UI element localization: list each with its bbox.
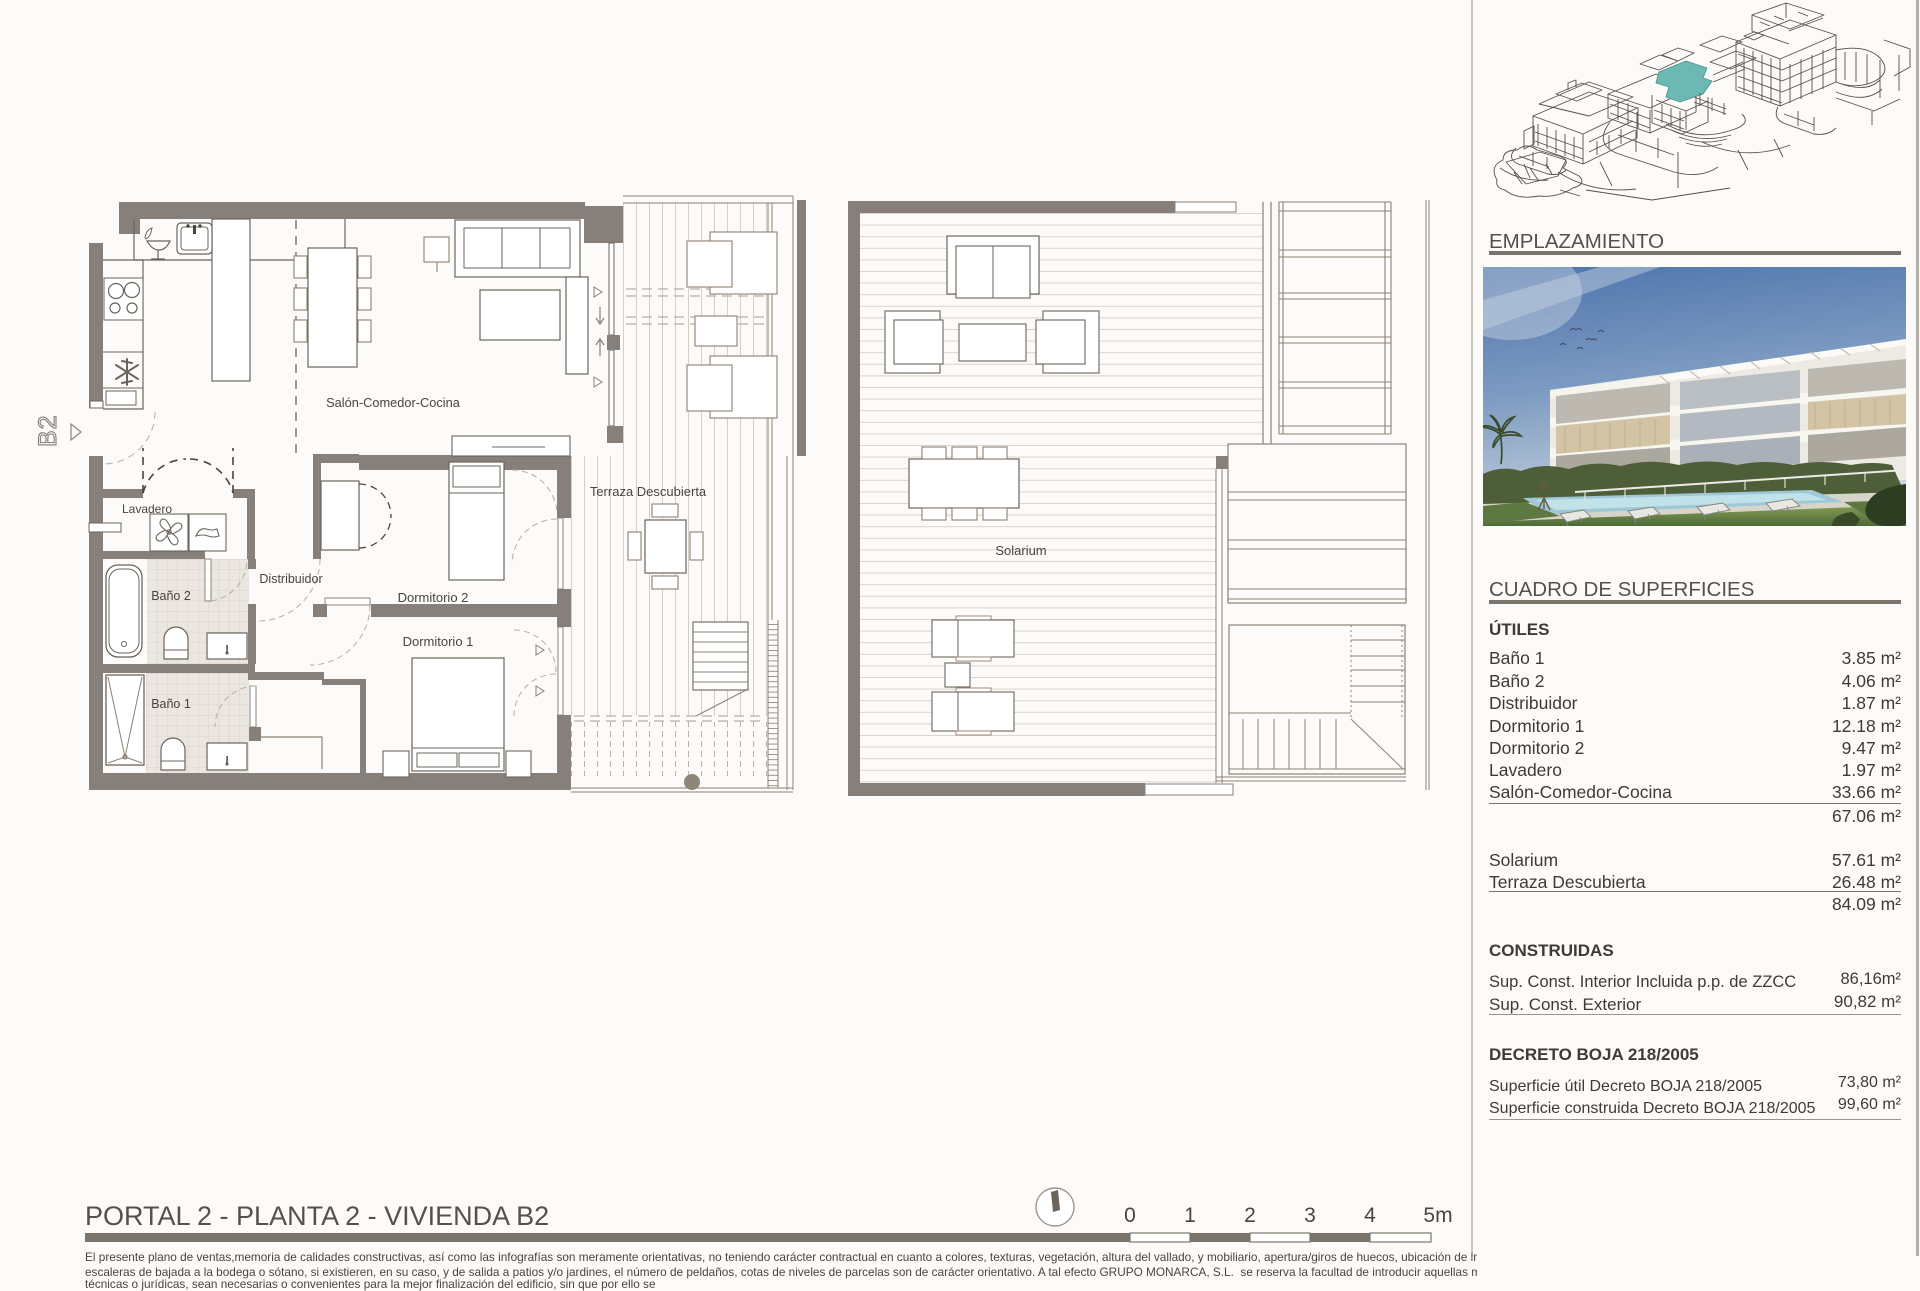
svg-text:1: 1 bbox=[1184, 1204, 1196, 1227]
svg-text:Solarium: Solarium bbox=[995, 543, 1046, 558]
svg-text:Baño 2: Baño 2 bbox=[151, 589, 191, 603]
svg-text:Lavadero: Lavadero bbox=[122, 502, 172, 516]
svg-text:Dormitorio 1: Dormitorio 1 bbox=[403, 634, 474, 649]
svg-text:5m: 5m bbox=[1423, 1204, 1452, 1227]
svg-text:Dormitorio 2: Dormitorio 2 bbox=[398, 590, 469, 605]
svg-text:2: 2 bbox=[1244, 1204, 1256, 1227]
svg-text:Salón-Comedor-Cocina: Salón-Comedor-Cocina bbox=[326, 395, 461, 410]
svg-text:B2: B2 bbox=[34, 414, 62, 447]
svg-text:Terraza Descubierta: Terraza Descubierta bbox=[590, 484, 707, 499]
svg-text:3: 3 bbox=[1304, 1204, 1316, 1227]
svg-text:4: 4 bbox=[1364, 1204, 1376, 1227]
svg-text:Distribuidor: Distribuidor bbox=[259, 572, 322, 586]
svg-text:0: 0 bbox=[1124, 1204, 1136, 1227]
svg-text:Baño 1: Baño 1 bbox=[151, 697, 191, 711]
